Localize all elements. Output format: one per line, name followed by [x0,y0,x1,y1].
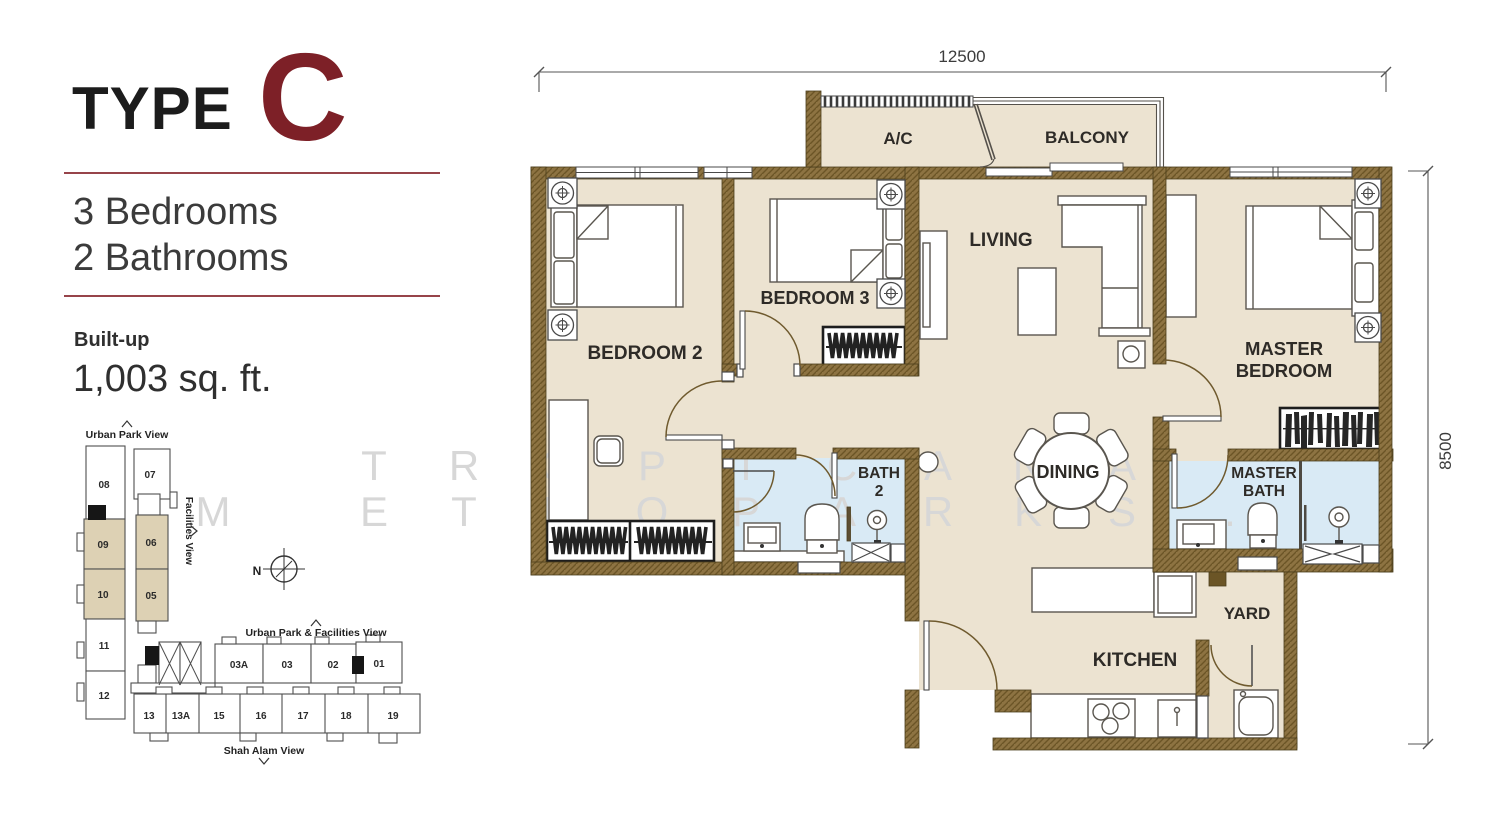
svg-text:M: M [196,488,231,535]
svg-text:18: 18 [340,711,352,722]
svg-text:Shah Alam View: Shah Alam View [224,745,305,757]
svg-text:05: 05 [145,591,157,602]
svg-text:02: 02 [327,660,339,671]
svg-text:T: T [451,488,477,535]
svg-text:06: 06 [145,538,157,549]
svg-text:10: 10 [97,590,109,601]
svg-text:DINING: DINING [1037,462,1100,482]
svg-text:13: 13 [143,711,155,722]
svg-text:P: P [638,442,666,489]
svg-text:R: R [449,442,479,489]
svg-text:R: R [923,488,953,535]
svg-text:2: 2 [875,483,884,500]
svg-text:BEDROOM 2: BEDROOM 2 [587,343,702,364]
svg-text:MASTER: MASTER [1245,338,1323,359]
svg-text:Urban Park & Facilities View: Urban Park & Facilities View [245,627,387,639]
svg-text:BALCONY: BALCONY [1045,128,1130,147]
svg-text:LIVING: LIVING [969,230,1032,251]
svg-text:BEDROOM: BEDROOM [1236,360,1333,381]
svg-text:Facilities View: Facilities View [183,497,194,565]
svg-text:BATH: BATH [858,465,900,482]
svg-text:09: 09 [97,540,109,551]
svg-text:13A: 13A [172,711,190,722]
svg-text:MASTER: MASTER [1231,465,1296,482]
svg-text:T: T [361,442,387,489]
svg-text:YARD: YARD [1224,604,1271,623]
svg-text:A/C: A/C [883,129,912,148]
svg-text:E: E [360,488,388,535]
svg-text:07: 07 [144,470,156,481]
svg-text:15: 15 [213,711,225,722]
svg-text:11: 11 [99,641,110,652]
svg-text:12: 12 [98,691,110,702]
svg-text:KITCHEN: KITCHEN [1093,650,1177,671]
svg-text:19: 19 [387,711,399,722]
svg-text:BEDROOM 3: BEDROOM 3 [760,288,869,308]
svg-text:08: 08 [98,480,110,491]
svg-text:03: 03 [281,660,293,671]
svg-text:8500: 8500 [1436,432,1455,470]
svg-text:17: 17 [297,711,309,722]
svg-text:01: 01 [373,659,385,670]
svg-text:BATH: BATH [1243,483,1285,500]
svg-text:16: 16 [255,711,267,722]
svg-text:03A: 03A [230,660,248,671]
svg-text:12500: 12500 [938,47,985,66]
svg-text:N: N [253,564,262,578]
svg-text:Urban Park View: Urban Park View [86,429,170,441]
